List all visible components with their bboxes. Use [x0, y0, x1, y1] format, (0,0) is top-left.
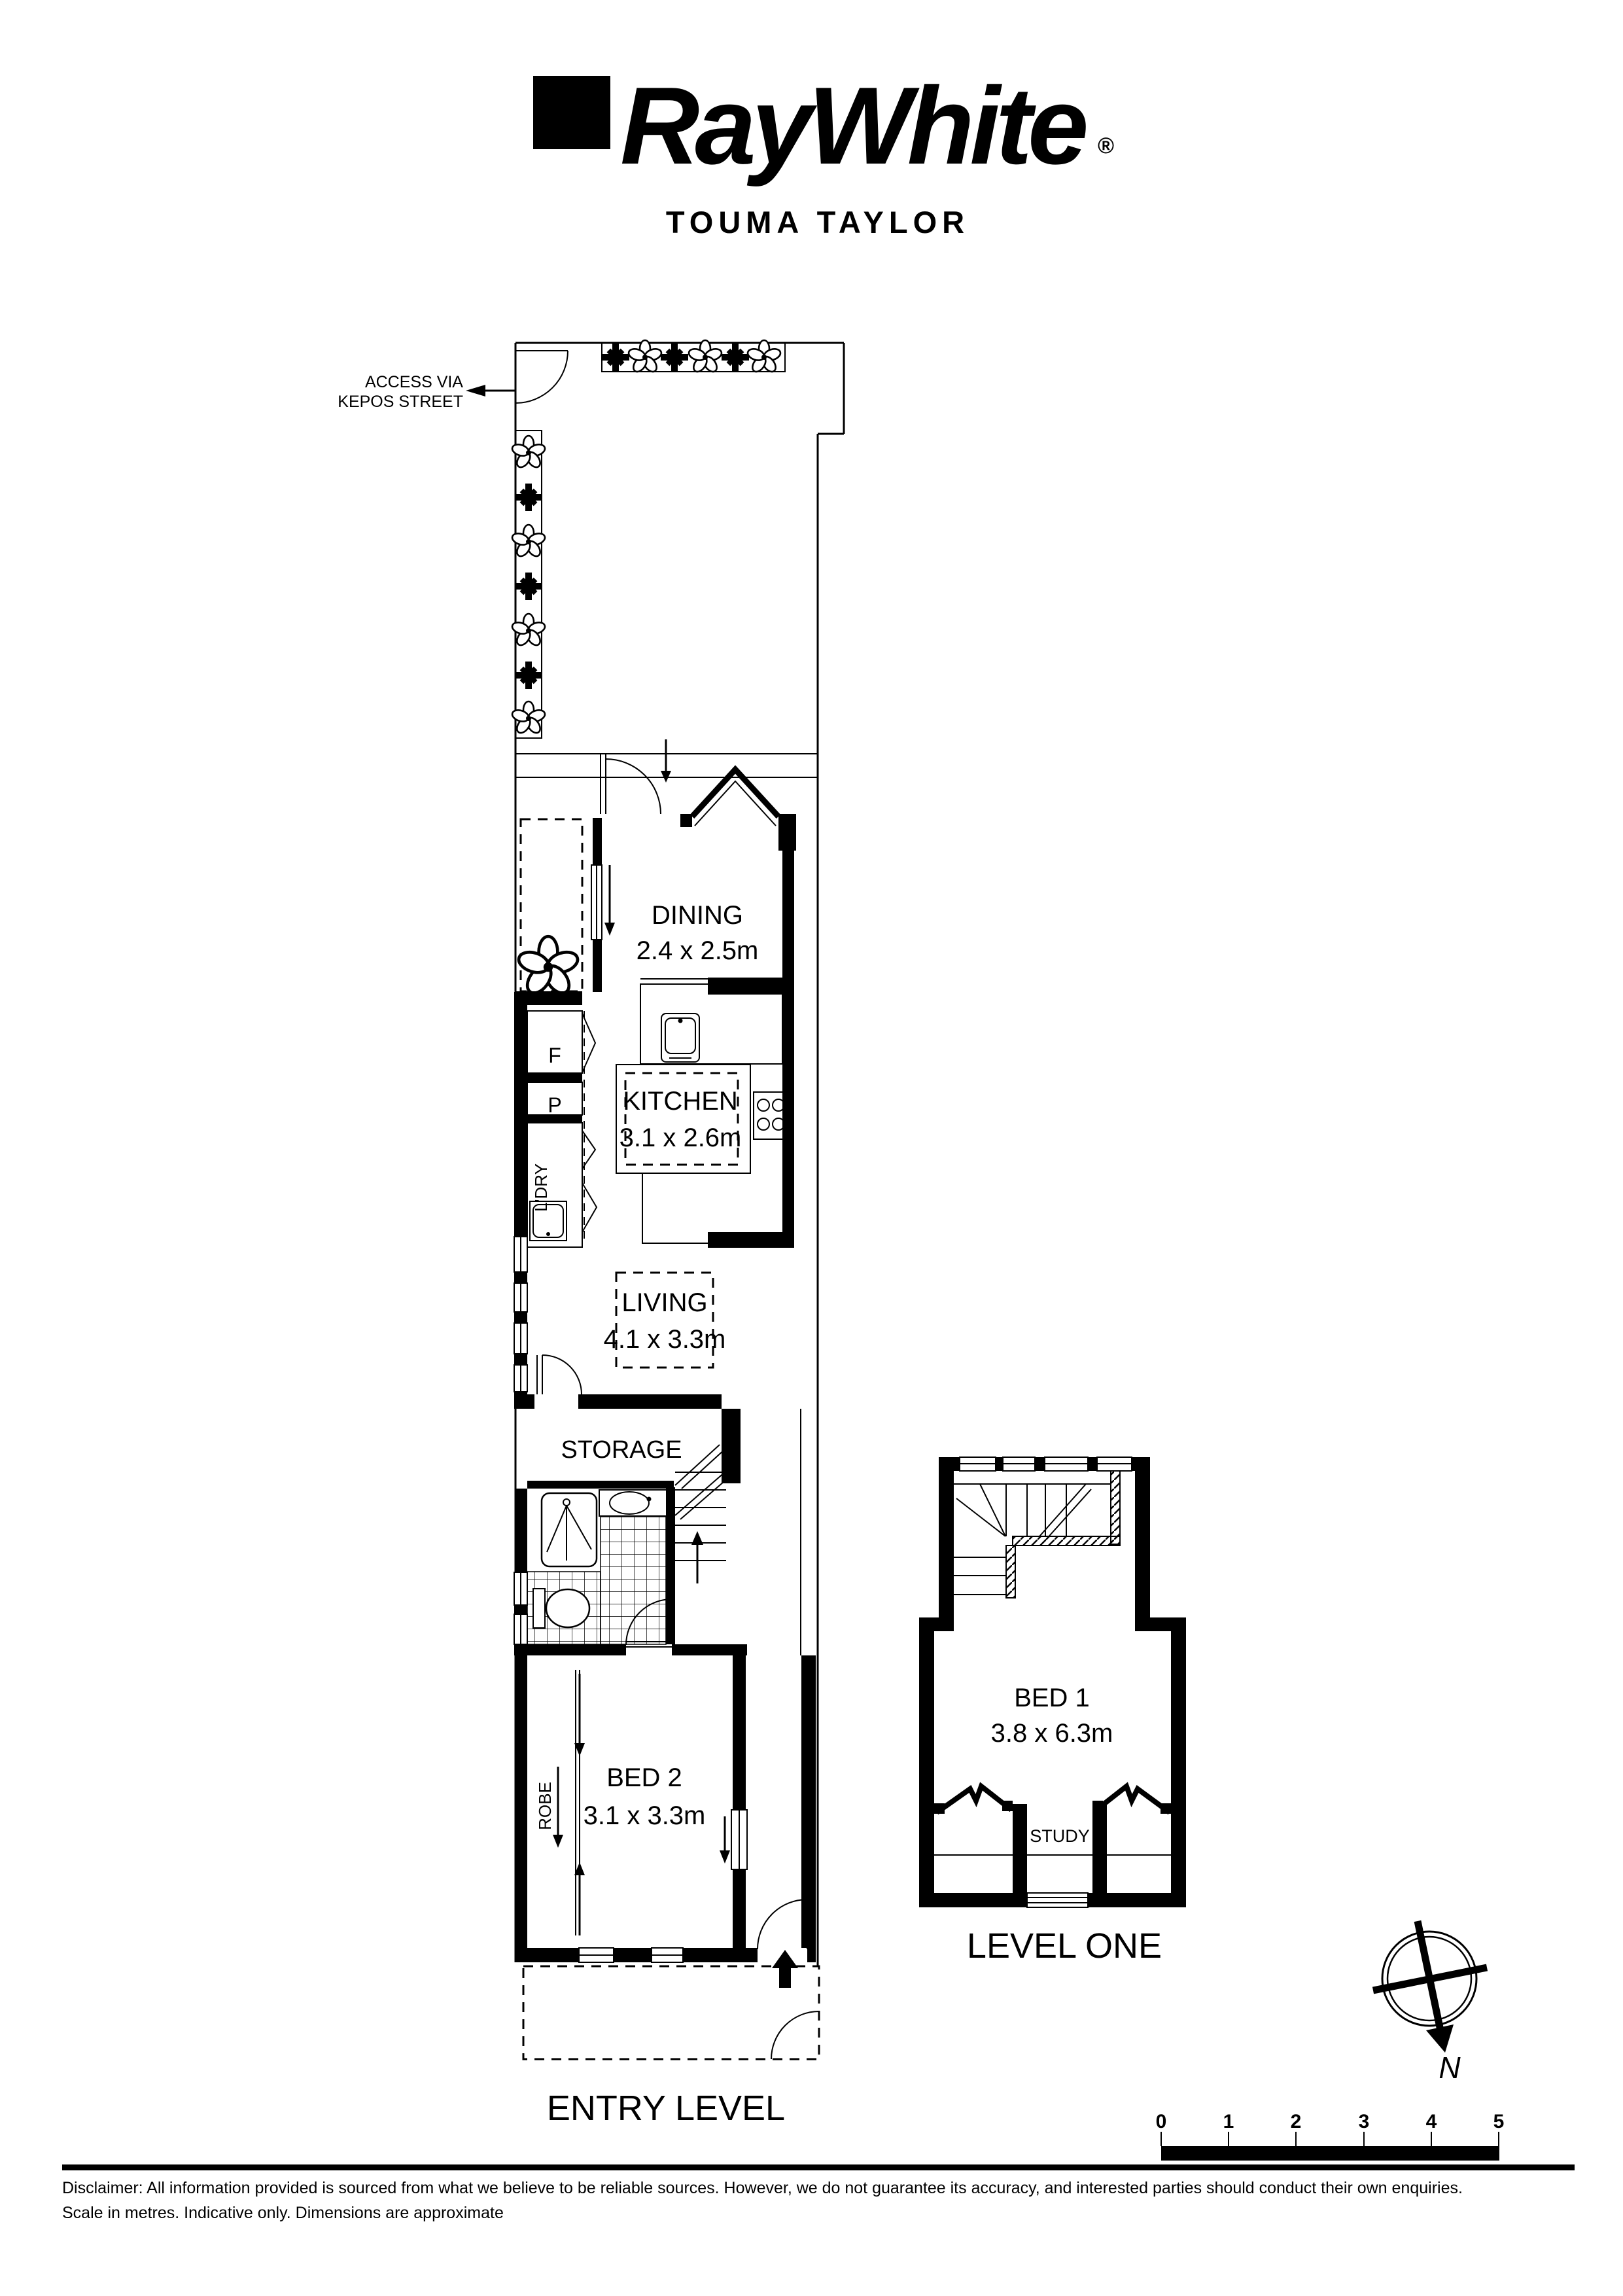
agency-name: TOUMA TAYLOR — [666, 205, 969, 239]
window-arrow-icon — [720, 1850, 730, 1863]
study-label: STUDY — [1030, 1826, 1090, 1846]
living-windows — [514, 1224, 527, 1409]
plant-icon — [627, 340, 663, 374]
bed2-dims: 3.1 x 3.3m — [584, 1801, 706, 1830]
stairs-up-arrow-icon — [691, 1531, 703, 1545]
plant-icon — [602, 344, 629, 371]
kitchen-dims: 3.1 x 2.6m — [620, 1123, 742, 1152]
pantry-label: P — [548, 1093, 561, 1117]
entry-door-arc — [758, 1899, 807, 1949]
plant-icon — [661, 344, 688, 371]
balustrade — [1006, 1545, 1015, 1598]
room-storage: STORAGE — [527, 1409, 741, 1489]
plant-icon — [688, 340, 723, 374]
kitchen-sink-icon — [661, 1014, 699, 1062]
scale-tick-label: 5 — [1493, 2111, 1505, 2132]
balustrade — [1013, 1536, 1120, 1545]
stair-rail — [1039, 1484, 1086, 1536]
entry-level-title: ENTRY LEVEL — [547, 2089, 785, 2128]
north-arrow-icon — [1426, 2024, 1454, 2053]
compass-rose: N — [1373, 1921, 1487, 2085]
scale-tick-label: 1 — [1223, 2111, 1234, 2132]
storage-label: STORAGE — [561, 1436, 682, 1464]
kitchen-island — [616, 1065, 750, 1173]
kitchen-label: KITCHEN — [623, 1087, 738, 1116]
balustrade — [1111, 1471, 1120, 1544]
room-living: LIVING 4.1 x 3.3m — [514, 1224, 725, 1409]
living-dims: 4.1 x 3.3m — [604, 1325, 726, 1354]
brand-logo: RayWhite ® TOUMA TAYLOR — [533, 64, 1114, 239]
plant-icon — [516, 936, 580, 997]
front-fence — [515, 739, 818, 851]
scale-tick-label: 3 — [1359, 2111, 1370, 2132]
robe-label: ROBE — [535, 1782, 555, 1830]
room-dining: DINING 2.4 x 2.5m — [515, 818, 794, 1005]
floorplan-page: { "header": { "brand": "RayWhite", "regi… — [0, 0, 1623, 2296]
room-bed2: ROBE BED 2 3.1 x 3.3m — [515, 1655, 816, 1988]
storage-door-arc — [542, 1355, 582, 1394]
plant-icon — [746, 340, 782, 374]
stairs-level-one — [954, 1471, 1120, 1598]
brand-wordmark: RayWhite — [620, 64, 1086, 187]
level-one-title: LEVEL ONE — [967, 1926, 1162, 1966]
closets: F P L'DRY — [514, 992, 597, 1247]
scale-bar: 0 1 2 3 4 5 — [1156, 2111, 1505, 2161]
bed1-label: BED 1 — [1014, 1684, 1090, 1712]
plant-icon — [515, 573, 542, 600]
brand-square-icon — [533, 76, 610, 149]
vanity-icon — [599, 1490, 674, 1516]
svg-text:ACCESS VIA: ACCESS VIA — [365, 373, 463, 391]
scale-tick-label: 0 — [1156, 2111, 1167, 2132]
room-kitchen: KITCHEN 3.1 x 2.6m F P — [514, 978, 794, 1248]
shower-icon — [542, 1493, 597, 1566]
north-label: N — [1439, 2051, 1461, 2085]
entry-arrow-icon — [772, 1950, 798, 1988]
tiled-floor — [601, 1515, 666, 1644]
toilet-icon — [533, 1589, 589, 1628]
dining-dims: 2.4 x 2.5m — [637, 936, 759, 965]
plant-icon — [515, 662, 542, 689]
scale-tick-label: 4 — [1426, 2111, 1437, 2132]
wardrobe-right — [1092, 1786, 1171, 1893]
window-arrow-icon — [604, 923, 615, 936]
gate-arc — [515, 351, 568, 403]
bed2-label: BED 2 — [606, 1763, 682, 1792]
wardrobe-left — [934, 1786, 1027, 1893]
plant-icon — [515, 484, 542, 511]
disclaimer-line1: Disclaimer: All information provided is … — [62, 2179, 1463, 2197]
living-label: LIVING — [621, 1288, 707, 1317]
entry-level-plan: ACCESS VIA KEPOS STREET — [338, 340, 844, 2128]
bifold-door-icon — [692, 769, 778, 817]
porch-door-arc — [771, 2011, 819, 2059]
dining-label: DINING — [652, 901, 743, 930]
scale-tick-label: 2 — [1291, 2111, 1302, 2132]
registered-mark: ® — [1098, 133, 1114, 158]
scale-bar-fill — [1161, 2146, 1499, 2161]
bed1-dims: 3.8 x 6.3m — [991, 1719, 1113, 1748]
robe-door-icon — [1096, 1786, 1170, 1812]
fence-gate-arc — [606, 759, 661, 814]
level-one-plan: BED 1 3.8 x 6.3m STUDY LEVEL ONE — [919, 1457, 1186, 1966]
fridge-label: F — [548, 1044, 561, 1067]
robe-door-icon — [937, 1786, 1011, 1812]
access-arrow-icon — [466, 385, 485, 397]
plant-icon — [722, 344, 749, 371]
floor-plan-svg: RayWhite ® TOUMA TAYLOR ACCESS VIA KEPOS… — [0, 0, 1623, 2296]
window — [1027, 1893, 1088, 1907]
footer-divider — [62, 2164, 1575, 2170]
room-bathroom — [514, 1487, 747, 1655]
robe-arrow-icon — [553, 1835, 563, 1848]
footer: Disclaimer: All information provided is … — [62, 2164, 1575, 2222]
svg-text:KEPOS STREET: KEPOS STREET — [338, 393, 463, 411]
access-label: ACCESS VIA KEPOS STREET — [338, 373, 515, 411]
porch — [523, 1966, 819, 2059]
disclaimer-line2: Scale in metres. Indicative only. Dimens… — [62, 2204, 504, 2222]
